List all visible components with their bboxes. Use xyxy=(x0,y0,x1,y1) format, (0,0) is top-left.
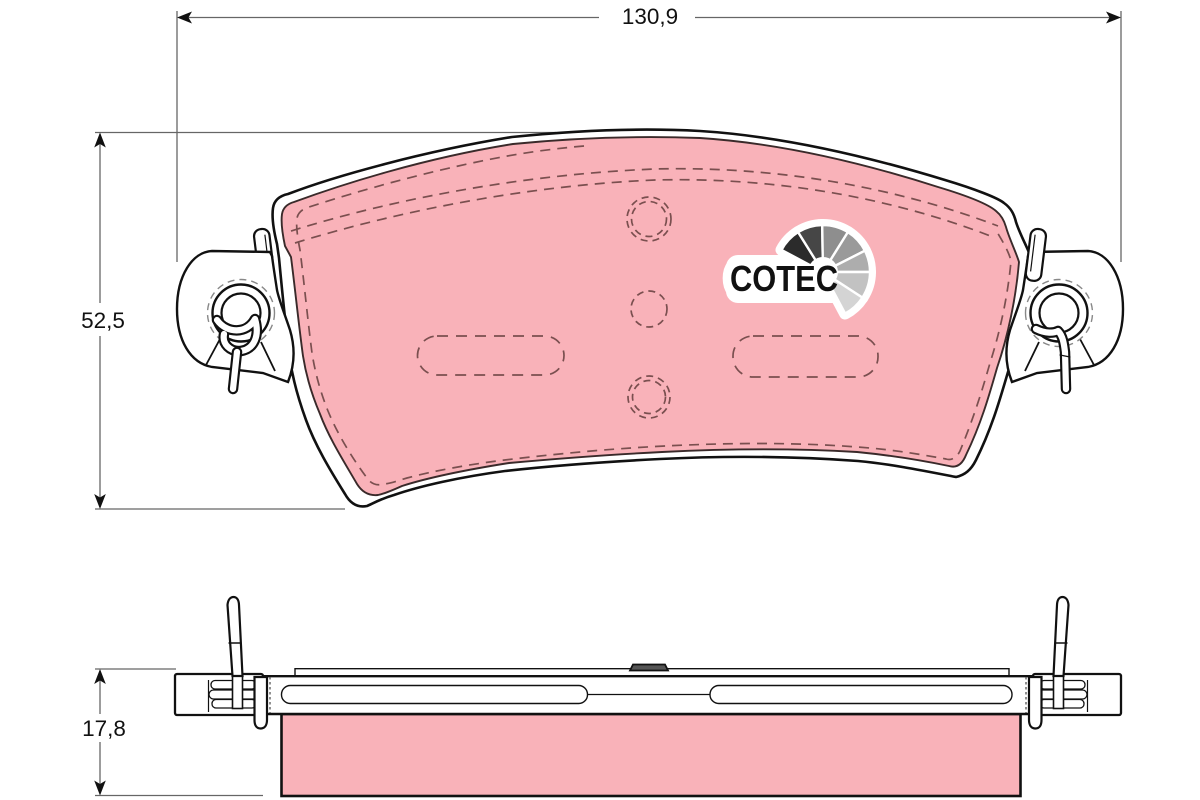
svg-text:17,8: 17,8 xyxy=(82,716,126,741)
svg-text:52,5: 52,5 xyxy=(81,308,125,333)
svg-text:130,9: 130,9 xyxy=(622,4,678,29)
svg-text:COTEC: COTEC xyxy=(730,258,838,299)
